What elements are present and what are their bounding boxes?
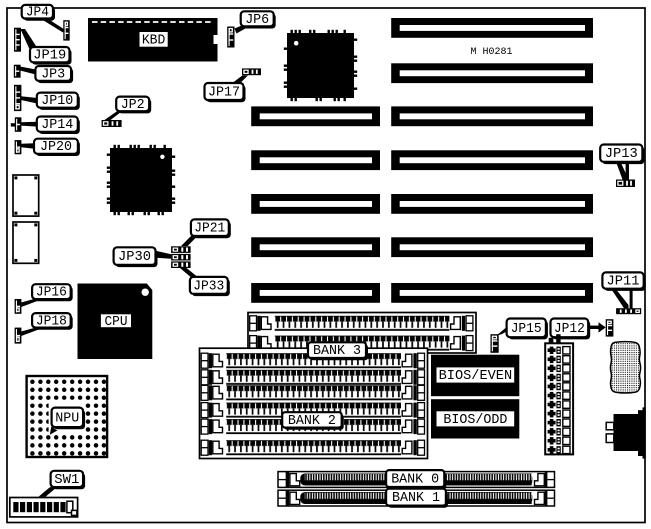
svg-text:JP18: JP18 — [36, 314, 67, 329]
svg-text:JP11: JP11 — [607, 275, 640, 290]
svg-text:JP30: JP30 — [118, 250, 151, 265]
svg-text:JP4: JP4 — [26, 6, 49, 21]
svg-text:JP17: JP17 — [208, 86, 240, 101]
svg-text:JP16: JP16 — [36, 286, 67, 301]
svg-text:JP21: JP21 — [194, 222, 225, 237]
svg-text:JP19: JP19 — [33, 49, 66, 64]
svg-text:JP15: JP15 — [511, 322, 542, 337]
svg-text:JP2: JP2 — [121, 98, 145, 113]
svg-text:BANK 1: BANK 1 — [392, 491, 440, 506]
svg-text:JP20: JP20 — [40, 140, 72, 155]
svg-text:BIOS/EVEN: BIOS/EVEN — [439, 369, 513, 384]
svg-text:JP10: JP10 — [41, 94, 73, 109]
svg-text:BANK 0: BANK 0 — [391, 473, 439, 488]
svg-text:JP3: JP3 — [41, 68, 65, 83]
svg-text:JP33: JP33 — [193, 279, 224, 294]
svg-text:M H0281: M H0281 — [471, 46, 513, 58]
svg-text:JP13: JP13 — [605, 147, 638, 162]
svg-text:BIOS/ODD: BIOS/ODD — [443, 413, 507, 428]
svg-text:BANK 2: BANK 2 — [288, 414, 336, 429]
svg-text:JP6: JP6 — [245, 13, 269, 28]
svg-text:JP14: JP14 — [41, 118, 73, 133]
svg-text:CPU: CPU — [105, 315, 128, 330]
svg-text:SW1: SW1 — [54, 473, 79, 488]
svg-text:NPU: NPU — [55, 411, 79, 426]
svg-text:KBD: KBD — [142, 33, 166, 48]
svg-text:BANK 3: BANK 3 — [313, 344, 361, 359]
